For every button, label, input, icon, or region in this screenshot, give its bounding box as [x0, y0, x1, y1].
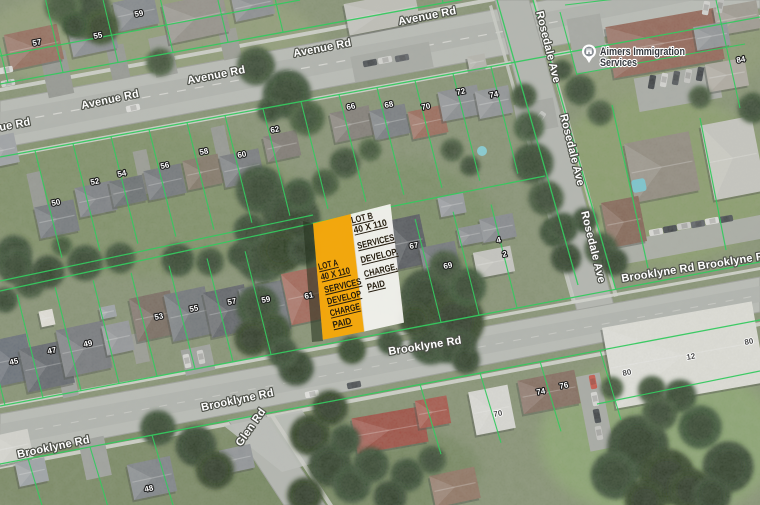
svg-text:Services: Services: [600, 57, 637, 69]
